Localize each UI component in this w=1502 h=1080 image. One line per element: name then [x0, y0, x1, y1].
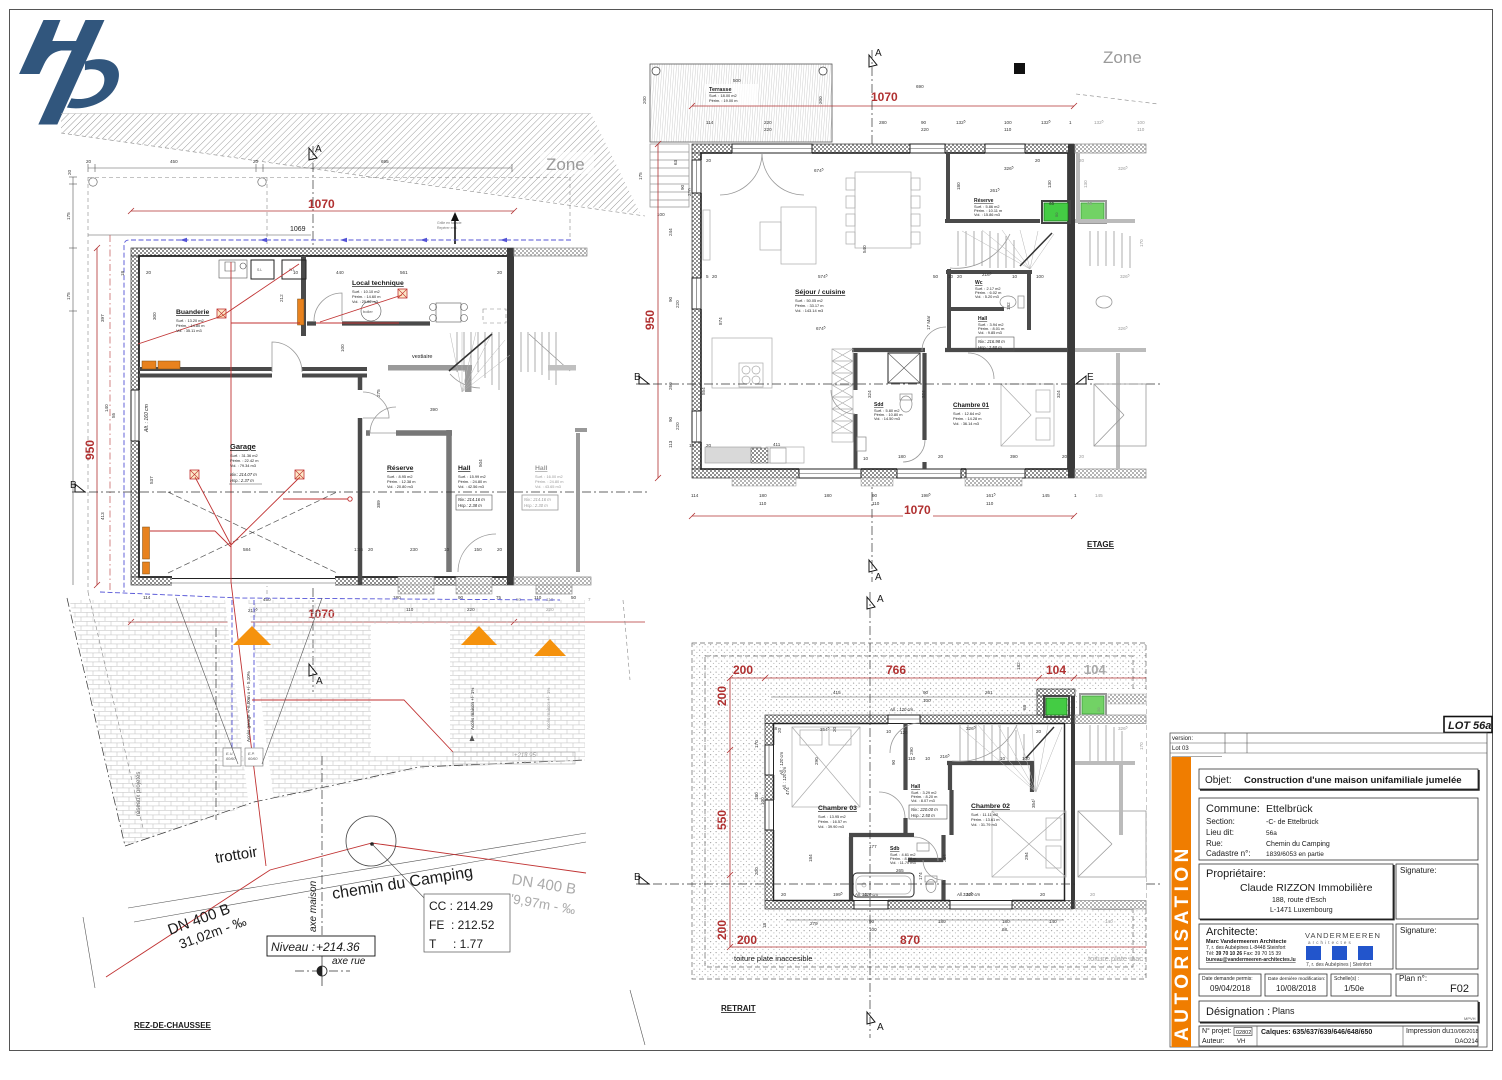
svg-text:Vol. : 5.20 m3: Vol. : 5.20 m3 — [975, 294, 999, 299]
svg-text:10/08/2018: 10/08/2018 — [1276, 984, 1317, 993]
svg-text:175: 175 — [66, 212, 71, 220]
svg-text:114: 114 — [691, 493, 699, 498]
svg-text:Plan n°:: Plan n°: — [1399, 974, 1427, 983]
svg-text:Section:: Section: — [1206, 817, 1235, 826]
svg-text:100: 100 — [1137, 120, 1145, 125]
svg-text:Vol. : 15.86 m3: Vol. : 15.86 m3 — [974, 212, 1000, 217]
svg-text:132: 132 — [1016, 662, 1021, 670]
svg-text:Niv.: 220.00 m: Niv.: 220.00 m — [911, 807, 938, 812]
svg-text:440: 440 — [336, 270, 344, 275]
svg-text:VANDERMEEREN: VANDERMEEREN — [1305, 931, 1381, 940]
svg-text:554: 554 — [701, 387, 706, 395]
svg-text:Hsp.: 2.38 m: Hsp.: 2.38 m — [458, 503, 482, 508]
svg-text:B: B — [70, 480, 77, 491]
svg-text:Zone: Zone — [546, 155, 585, 174]
svg-text:1: 1 — [1069, 120, 1072, 125]
svg-text:100: 100 — [1022, 756, 1030, 761]
svg-text:10: 10 — [886, 729, 892, 734]
svg-text:294: 294 — [1024, 852, 1029, 860]
svg-text:Vol. : 11.70 m3: Vol. : 11.70 m3 — [890, 860, 916, 865]
svg-text:10: 10 — [1012, 274, 1018, 279]
svg-text:20: 20 — [497, 547, 503, 552]
svg-text:60/60: 60/60 — [248, 757, 258, 761]
svg-text:Lieu dit:: Lieu dit: — [1206, 828, 1234, 837]
svg-text:174: 174 — [918, 872, 923, 880]
svg-text:50: 50 — [1054, 212, 1059, 217]
svg-text:324: 324 — [921, 390, 926, 398]
svg-text:Date dernière modification:: Date dernière modification: — [1268, 976, 1325, 982]
svg-text:55: 55 — [111, 412, 116, 418]
svg-text:100: 100 — [923, 698, 931, 703]
svg-text:Local technique: Local technique — [352, 280, 404, 287]
svg-text:220: 220 — [921, 127, 929, 132]
svg-text:90: 90 — [891, 759, 896, 765]
svg-text:bureau@vandermeeren-architecte: bureau@vandermeeren-architectes.lu — [1206, 957, 1296, 963]
svg-text:20: 20 — [1040, 892, 1046, 897]
svg-text:axe rue: axe rue — [332, 956, 366, 967]
svg-text:Claude RIZZON Immobilière: Claude RIZZON Immobilière — [1240, 882, 1373, 894]
svg-text:145: 145 — [1042, 493, 1050, 498]
svg-text:axe maison: axe maison — [308, 880, 319, 932]
svg-text:100: 100 — [1004, 120, 1012, 125]
svg-text:10/08/2018: 10/08/2018 — [1451, 1029, 1479, 1035]
svg-text:Niv.: 214.16 m: Niv.: 214.16 m — [524, 497, 551, 502]
svg-text:A: A — [875, 48, 882, 59]
svg-text:1070: 1070 — [871, 90, 898, 104]
svg-text:170: 170 — [754, 740, 759, 748]
svg-text:20: 20 — [1079, 158, 1085, 163]
svg-text:244: 244 — [668, 228, 673, 236]
svg-text:Alt. : 160 cm: Alt. : 160 cm — [144, 404, 150, 433]
svg-text:220: 220 — [764, 120, 772, 125]
svg-text:110: 110 — [908, 756, 916, 761]
svg-text:Chemin du Camping: Chemin du Camping — [1266, 841, 1330, 848]
svg-text:Hall: Hall — [535, 465, 548, 472]
svg-text:300: 300 — [152, 312, 157, 320]
svg-text:766: 766 — [886, 663, 906, 677]
svg-text:50: 50 — [571, 595, 577, 600]
svg-text:Calques: 635/637/639/646/648/6: Calques: 635/637/639/646/648/650 — [1261, 1029, 1372, 1036]
svg-text:180: 180 — [898, 454, 906, 459]
svg-text:20: 20 — [1079, 454, 1085, 459]
svg-text:220: 220 — [764, 127, 772, 132]
svg-text:110: 110 — [1004, 127, 1012, 132]
svg-text:DAO214: DAO214 — [1455, 1039, 1479, 1045]
svg-text:200: 200 — [715, 920, 729, 940]
svg-text:20: 20 — [1090, 892, 1096, 897]
svg-text:Auteur:: Auteur: — [1202, 1038, 1225, 1045]
svg-text:280: 280 — [879, 120, 887, 125]
svg-text:200: 200 — [754, 867, 759, 875]
svg-text:Architecte:: Architecte: — [1206, 926, 1258, 938]
svg-text:Cadastre n°:: Cadastre n°: — [1206, 849, 1251, 858]
svg-text:63: 63 — [673, 159, 678, 165]
svg-text:100: 100 — [760, 797, 765, 805]
svg-text:vestiaire: vestiaire — [412, 354, 432, 360]
svg-text:950: 950 — [83, 440, 97, 460]
svg-text:180: 180 — [824, 493, 832, 498]
svg-text:10: 10 — [948, 274, 954, 279]
svg-text:100: 100 — [340, 344, 345, 352]
svg-text:All. : 120 cm: All. : 120 cm — [779, 751, 784, 776]
svg-text:Chambre 02: Chambre 02 — [971, 803, 1010, 810]
svg-text:Périm. : 19.00 m: Périm. : 19.00 m — [709, 98, 738, 103]
svg-text:Date demande permis:: Date demande permis: — [1202, 976, 1253, 982]
svg-text:Vol. : 79.34 m3: Vol. : 79.34 m3 — [230, 463, 256, 468]
svg-text:7: 7 — [588, 597, 591, 602]
svg-text:175: 175 — [66, 292, 71, 300]
svg-text:ETAGE: ETAGE — [1087, 540, 1115, 549]
svg-text:Vol. : 8.07 m3: Vol. : 8.07 m3 — [911, 798, 935, 803]
svg-text:Accès maison +/- 1%: Accès maison +/- 1% — [470, 688, 475, 730]
svg-text:290: 290 — [814, 757, 819, 765]
svg-text:20: 20 — [253, 159, 259, 164]
svg-text:104: 104 — [1046, 663, 1066, 677]
svg-text:188, route d'Esch: 188, route d'Esch — [1272, 897, 1326, 904]
svg-text:5: 5 — [706, 274, 709, 279]
svg-text:415: 415 — [833, 690, 841, 695]
svg-text:Réserve: Réserve — [387, 465, 414, 472]
svg-text:Vol. : 25.86 m3: Vol. : 25.86 m3 — [352, 299, 378, 304]
svg-text:200: 200 — [642, 96, 647, 104]
svg-text:A: A — [877, 594, 884, 605]
svg-text:200: 200 — [818, 96, 823, 104]
svg-text:20: 20 — [67, 169, 72, 175]
svg-text:50: 50 — [933, 274, 939, 279]
svg-text:1:16: 1:16 — [354, 547, 363, 552]
svg-text:LOT 56a: LOT 56a — [1448, 720, 1491, 732]
svg-text:114: 114 — [706, 120, 714, 125]
svg-text:VH: VH — [1237, 1039, 1245, 1045]
svg-text:A: A — [875, 572, 882, 583]
svg-text:20: 20 — [1062, 454, 1068, 459]
svg-text:324: 324 — [1056, 390, 1061, 398]
svg-text:150: 150 — [474, 547, 482, 552]
svg-text:MPVH: MPVH — [1464, 1016, 1476, 1021]
svg-text:110: 110 — [986, 501, 994, 506]
svg-text:18: 18 — [689, 443, 695, 448]
svg-text:Désignation :: Désignation : — [1206, 1006, 1270, 1018]
svg-text:200: 200 — [715, 686, 729, 706]
svg-text:950: 950 — [643, 310, 657, 330]
svg-text:Chambre 03: Chambre 03 — [818, 805, 857, 812]
svg-text:184: 184 — [808, 854, 813, 862]
svg-text:230: 230 — [410, 547, 418, 552]
svg-text:20: 20 — [938, 454, 944, 459]
svg-text:537: 537 — [149, 476, 154, 484]
svg-text:AUTORISATION: AUTORISATION — [1172, 844, 1193, 1041]
svg-text:Vol. : 143.14 m3: Vol. : 143.14 m3 — [795, 308, 823, 313]
svg-text:170: 170 — [1139, 239, 1144, 247]
svg-text:389: 389 — [376, 500, 381, 508]
svg-text:90: 90 — [921, 120, 927, 125]
svg-text:10: 10 — [862, 892, 868, 897]
svg-text:10: 10 — [863, 456, 869, 461]
svg-text:Vol. : 14.50 m3: Vol. : 14.50 m3 — [874, 416, 900, 421]
svg-text:B: B — [634, 872, 641, 883]
svg-text:18: 18 — [120, 270, 125, 276]
svg-text:90: 90 — [872, 493, 878, 498]
svg-text:Impression du:: Impression du: — [1406, 1028, 1452, 1035]
svg-text:874: 874 — [718, 317, 723, 325]
svg-text:Chambre 01: Chambre 01 — [953, 402, 990, 409]
svg-text:Vol. : 43.65 m3: Vol. : 43.65 m3 — [535, 484, 561, 489]
svg-text:Vol. : 31.79 m3: Vol. : 31.79 m3 — [971, 822, 997, 827]
svg-text:504: 504 — [478, 459, 483, 467]
svg-text:02802: 02802 — [1236, 1030, 1251, 1036]
svg-text:60/60: 60/60 — [226, 757, 236, 761]
svg-text:Propriétaire:: Propriétaire: — [1206, 868, 1266, 880]
svg-text:All. : 120 cm: All. : 120 cm — [889, 707, 914, 712]
svg-text:Rue:: Rue: — [1206, 839, 1223, 848]
svg-text:+213.95: +213.95 — [514, 753, 537, 759]
svg-text:Niv.: 216.98 m: Niv.: 216.98 m — [978, 339, 1005, 344]
svg-text:20: 20 — [706, 158, 712, 163]
svg-text:Accès maison +/- 1%: Accès maison +/- 1% — [546, 688, 551, 730]
svg-text:B: B — [634, 372, 641, 383]
svg-text:390: 390 — [430, 407, 438, 412]
svg-text:Vol. : 42.56 m3: Vol. : 42.56 m3 — [458, 484, 484, 489]
svg-text:Vol. : 39.90 m3: Vol. : 39.90 m3 — [818, 824, 844, 829]
svg-text:Garage: Garage — [230, 442, 256, 451]
svg-text:Hall: Hall — [458, 465, 471, 472]
svg-text:T : 1.77: T : 1.77 — [429, 937, 483, 951]
svg-text:90: 90 — [680, 184, 685, 190]
svg-text:100: 100 — [1036, 274, 1044, 279]
svg-text:20: 20 — [86, 159, 92, 164]
svg-text:20: 20 — [712, 274, 718, 279]
svg-text:500: 500 — [733, 78, 741, 83]
svg-text:F02: F02 — [1450, 983, 1469, 995]
svg-text:E.P.: E.P. — [248, 752, 255, 756]
svg-text:140: 140 — [104, 404, 109, 412]
svg-text:FE : 212.52: FE : 212.52 — [429, 918, 495, 932]
svg-text:290: 290 — [909, 747, 914, 755]
svg-text:10: 10 — [444, 547, 450, 552]
svg-text:110: 110 — [759, 501, 767, 506]
svg-text:1069: 1069 — [290, 226, 306, 233]
svg-text:Plans: Plans — [1272, 1006, 1295, 1016]
svg-text:Niveau :: Niveau : — [271, 940, 315, 954]
svg-text:E.U.: E.U. — [226, 752, 233, 756]
svg-text:Hsp.: 2.30 m: Hsp.: 2.30 m — [524, 503, 548, 508]
svg-text:Objet:: Objet: — [1205, 775, 1232, 786]
svg-text:10: 10 — [293, 270, 299, 275]
svg-text:180: 180 — [759, 493, 767, 498]
svg-text:90: 90 — [668, 416, 673, 422]
svg-text:Commune:: Commune: — [1206, 803, 1260, 815]
svg-text:A: A — [316, 676, 323, 687]
svg-text:Vol. : 36.14 m3: Vol. : 36.14 m3 — [953, 421, 979, 426]
svg-text:180: 180 — [956, 182, 961, 190]
svg-text:220: 220 — [546, 607, 554, 612]
svg-text:10: 10 — [1000, 756, 1006, 761]
svg-text:-C- de Ettelbrück: -C- de Ettelbrück — [1266, 819, 1319, 826]
svg-text:Construction d'une maison unif: Construction d'une maison unifamiliale j… — [1244, 775, 1462, 786]
svg-text:220: 220 — [675, 422, 680, 430]
svg-text:20: 20 — [1096, 707, 1101, 712]
svg-text:1: 1 — [1074, 493, 1077, 498]
svg-text:S.L: S.L — [257, 268, 262, 272]
svg-text:20: 20 — [1036, 729, 1042, 734]
svg-text:200: 200 — [737, 933, 757, 947]
svg-text:550: 550 — [715, 810, 729, 830]
svg-text:474: 474 — [785, 787, 790, 795]
svg-text:212: 212 — [279, 294, 284, 302]
svg-text:540: 540 — [862, 245, 867, 253]
svg-text:1/50e: 1/50e — [1344, 984, 1365, 993]
svg-text:+214.36: +214.36 — [316, 940, 360, 954]
svg-text:279: 279 — [810, 921, 818, 926]
svg-text:145: 145 — [1095, 493, 1103, 498]
svg-text:toiture plate inaccesible: toiture plate inaccesible — [734, 954, 812, 963]
svg-text:20: 20 — [957, 274, 963, 279]
svg-text:architectes: architectes — [1308, 940, 1353, 945]
svg-text:110: 110 — [406, 607, 414, 612]
svg-text:Vol. : 20.80 m3: Vol. : 20.80 m3 — [387, 484, 413, 489]
svg-text:20: 20 — [777, 727, 782, 733]
svg-text:20: 20 — [1035, 158, 1041, 163]
svg-text:90: 90 — [668, 296, 673, 302]
svg-text:261: 261 — [985, 690, 993, 695]
svg-text:réseaux projetés: réseaux projetés — [136, 772, 142, 816]
svg-text:Accès garage +/-6,00m x +/- 5,: Accès garage +/-6,00m x +/- 5,10% — [246, 671, 251, 742]
svg-text:CC : 214.29: CC : 214.29 — [429, 899, 493, 913]
svg-text:Schelle(s) :: Schelle(s) : — [1334, 976, 1359, 982]
svg-text:Séjour / cuisine: Séjour / cuisine — [795, 289, 845, 296]
svg-text:A: A — [315, 144, 322, 155]
svg-text:561: 561 — [400, 270, 408, 275]
svg-text:180: 180 — [754, 792, 759, 800]
svg-text:65: 65 — [1049, 201, 1055, 206]
svg-text:220: 220 — [675, 300, 680, 308]
svg-text:18: 18 — [762, 922, 767, 928]
svg-text:140: 140 — [1105, 919, 1113, 924]
svg-text:Niv.: 214.16 m: Niv.: 214.16 m — [458, 497, 485, 502]
svg-text:68: 68 — [1022, 704, 1027, 710]
svg-text:90: 90 — [923, 690, 929, 695]
svg-text:20: 20 — [368, 547, 374, 552]
svg-text:Hsp.: 2.50 m: Hsp.: 2.50 m — [911, 813, 935, 818]
svg-text:7, r. des Aubépines | Steinfor: 7, r. des Aubépines | Steinfort — [1306, 962, 1372, 968]
svg-text:690: 690 — [916, 84, 924, 89]
svg-text:Hsp.: 2.37 m: Hsp.: 2.37 m — [230, 478, 254, 483]
svg-text:120: 120 — [900, 730, 908, 735]
svg-text:220: 220 — [467, 607, 475, 612]
svg-text:260: 260 — [668, 382, 673, 390]
svg-text:E: E — [1087, 372, 1094, 383]
svg-text:264: 264 — [942, 854, 947, 862]
svg-text:182: 182 — [1006, 302, 1011, 310]
svg-text:114: 114 — [143, 595, 151, 600]
svg-text:20: 20 — [497, 270, 503, 275]
svg-text:584: 584 — [243, 547, 251, 552]
svg-text:56a: 56a — [1266, 830, 1277, 837]
svg-text:1070: 1070 — [904, 503, 931, 517]
svg-text:REZ-DE-CHAUSSEE: REZ-DE-CHAUSSEE — [134, 1021, 212, 1030]
svg-text:1070: 1070 — [308, 197, 335, 211]
svg-text:65: 65 — [1087, 201, 1093, 206]
svg-text:10: 10 — [925, 756, 931, 761]
svg-text:324: 324 — [867, 390, 872, 398]
svg-text:Signature:: Signature: — [1400, 866, 1436, 875]
svg-text:397: 397 — [100, 314, 105, 322]
svg-text:275: 275 — [376, 389, 381, 397]
svg-text:20: 20 — [706, 443, 712, 448]
svg-text:870: 870 — [900, 933, 920, 947]
svg-text:Buanderie: Buanderie — [176, 309, 209, 316]
svg-text:20: 20 — [781, 892, 787, 897]
svg-text:113: 113 — [668, 440, 673, 448]
svg-text:Hsp.: 2.50 m: Hsp.: 2.50 m — [978, 345, 1002, 350]
svg-text:110: 110 — [534, 595, 542, 600]
svg-text:265: 265 — [896, 868, 904, 873]
svg-text:110: 110 — [872, 501, 880, 506]
svg-text:170: 170 — [1139, 742, 1144, 750]
svg-text:450: 450 — [170, 159, 178, 164]
svg-text:Signature:: Signature: — [1400, 926, 1436, 935]
svg-text:411: 411 — [773, 442, 781, 447]
svg-text:104: 104 — [1084, 662, 1106, 677]
svg-text:695: 695 — [381, 159, 389, 164]
svg-text:L-1471 Luxembourg: L-1471 Luxembourg — [1270, 907, 1333, 914]
svg-text:09/04/2018: 09/04/2018 — [1210, 984, 1251, 993]
svg-text:130: 130 — [1047, 180, 1052, 188]
svg-text:Niv.: 214.07 m: Niv.: 214.07 m — [230, 472, 257, 477]
svg-text:20: 20 — [146, 270, 152, 275]
svg-text:413: 413 — [100, 512, 105, 520]
svg-text:110: 110 — [1137, 127, 1145, 132]
svg-text:390: 390 — [1010, 454, 1018, 459]
svg-text:RETRAIT: RETRAIT — [721, 1004, 756, 1013]
svg-text:1839/6053 en partie: 1839/6053 en partie — [1266, 851, 1324, 858]
svg-text:20: 20 — [832, 726, 837, 732]
svg-text:Lot 03: Lot 03 — [1172, 746, 1189, 752]
svg-text:200: 200 — [733, 663, 753, 677]
svg-text:Vol. : 9.85 m3: Vol. : 9.85 m3 — [978, 330, 1002, 335]
svg-text:N° projet:: N° projet: — [1202, 1027, 1231, 1035]
svg-text:toiture plate inac: toiture plate inac — [1088, 954, 1143, 963]
svg-text:version:: version: — [1172, 736, 1193, 742]
svg-text:boiler: boiler — [363, 309, 373, 314]
svg-text:68: 68 — [1002, 927, 1008, 932]
svg-text:130: 130 — [1083, 180, 1088, 188]
svg-text:Ettelbrück: Ettelbrück — [1266, 803, 1313, 815]
svg-text:Vol. : 35.11 m3: Vol. : 35.11 m3 — [176, 328, 202, 333]
svg-text:A: A — [877, 1022, 884, 1033]
svg-text:175: 175 — [638, 172, 643, 180]
svg-text:Grille en façade: Grille en façade — [437, 221, 462, 225]
svg-text:Zone: Zone — [1103, 48, 1142, 67]
svg-text:17 Mar: 17 Mar — [926, 315, 931, 330]
